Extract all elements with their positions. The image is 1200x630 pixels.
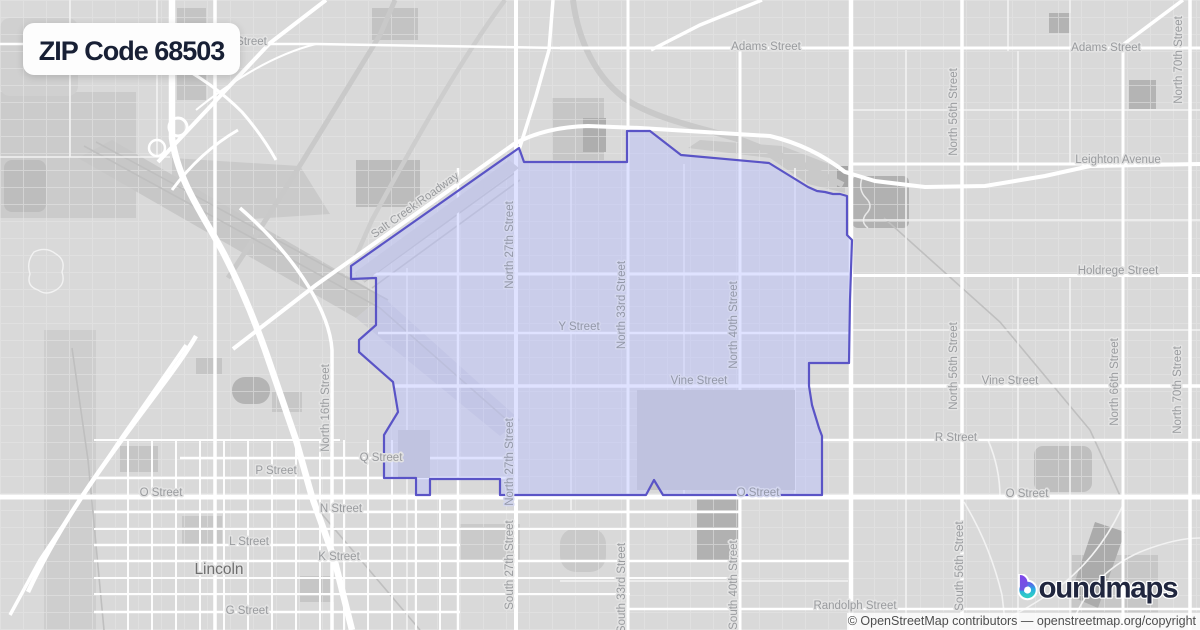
svg-text:Leighton Avenue: Leighton Avenue (1075, 154, 1160, 166)
svg-text:North 27th Street: North 27th Street (504, 200, 516, 288)
svg-text:Q Street: Q Street (360, 452, 404, 464)
svg-text:O Street: O Street (1006, 488, 1050, 500)
svg-text:North 33rd Street: North 33rd Street (616, 260, 628, 349)
svg-text:O Street: O Street (140, 487, 184, 499)
svg-text:South 27th Street: South 27th Street (504, 519, 516, 609)
svg-text:Vine Street: Vine Street (982, 375, 1039, 387)
svg-text:Lincoln: Lincoln (194, 561, 243, 578)
svg-text:L Street: L Street (229, 536, 270, 548)
svg-text:South 33rd Street: South 33rd Street (616, 542, 628, 630)
svg-text:Adams Street: Adams Street (731, 41, 801, 53)
svg-text:N Street: N Street (320, 503, 363, 515)
svg-text:R Street: R Street (935, 432, 978, 444)
svg-text:Vine Street: Vine Street (671, 375, 728, 387)
svg-text:K Street: K Street (318, 551, 360, 563)
svg-text:P Street: P Street (255, 465, 297, 477)
svg-text:North 56th Street: North 56th Street (948, 321, 960, 409)
svg-text:O Street: O Street (737, 487, 781, 499)
svg-text:G Street: G Street (226, 605, 270, 617)
svg-text:South 56th Street: South 56th Street (954, 520, 966, 610)
svg-text:North 70th Street: North 70th Street (1173, 15, 1185, 103)
svg-text:South 40th Street: South 40th Street (728, 539, 740, 629)
svg-text:Holdrege Street: Holdrege Street (1078, 265, 1159, 277)
svg-text:North 70th Street: North 70th Street (1172, 345, 1184, 433)
svg-text:Randolph Street: Randolph Street (813, 600, 897, 612)
svg-text:oundmaps: oundmaps (1039, 574, 1179, 605)
svg-text:North 40th Street: North 40th Street (728, 280, 740, 368)
svg-text:North 66th Street: North 66th Street (1109, 337, 1121, 425)
svg-text:North 16th Street: North 16th Street (320, 363, 332, 451)
svg-text:Y Street: Y Street (558, 321, 600, 333)
svg-text:North 27th Street: North 27th Street (504, 417, 516, 505)
svg-text:Adams Street: Adams Street (1071, 42, 1141, 54)
svg-text:North 56th Street: North 56th Street (948, 67, 960, 155)
